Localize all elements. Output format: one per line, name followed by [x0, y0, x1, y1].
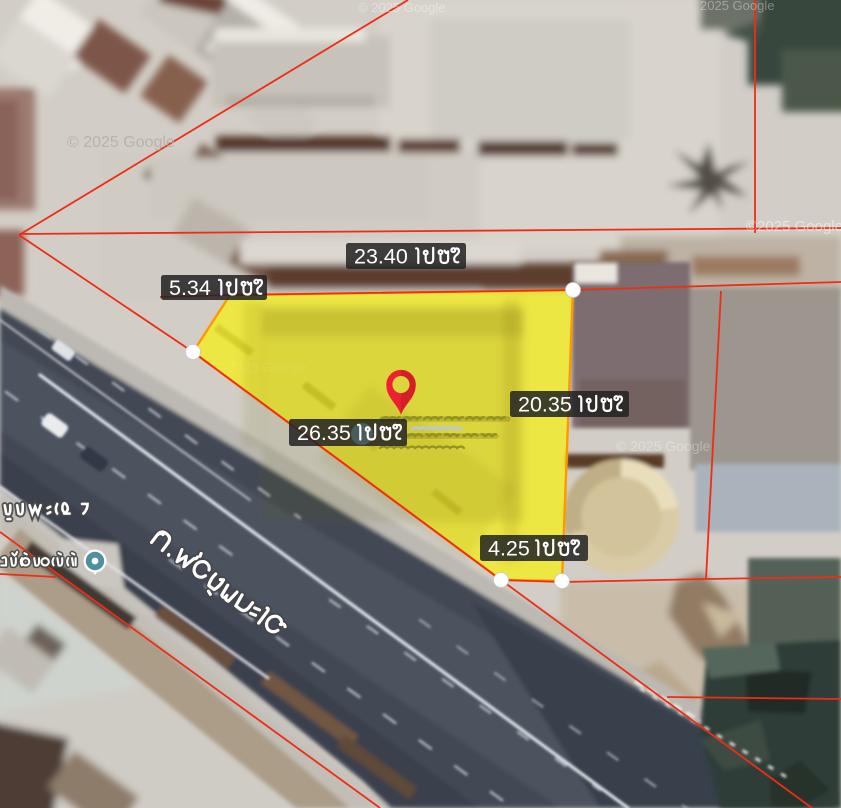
svg-text:5.34: 5.34: [169, 276, 211, 300]
svg-text:© 2025 Google: © 2025 Google: [358, 0, 446, 15]
svg-text:©2025 Google: ©2025 Google: [746, 218, 841, 235]
svg-text:© 2025 Google: © 2025 Google: [616, 438, 711, 454]
svg-text:© 2025 Google: © 2025 Google: [213, 359, 308, 375]
svg-text:23.40: 23.40: [354, 245, 408, 269]
svg-text:2025 Google: 2025 Google: [700, 0, 774, 13]
svg-text:© 2025 Google: © 2025 Google: [67, 134, 175, 151]
svg-text:4.25: 4.25: [488, 537, 530, 561]
svg-text:20.35: 20.35: [518, 393, 572, 417]
svg-text:26.35: 26.35: [297, 421, 351, 445]
